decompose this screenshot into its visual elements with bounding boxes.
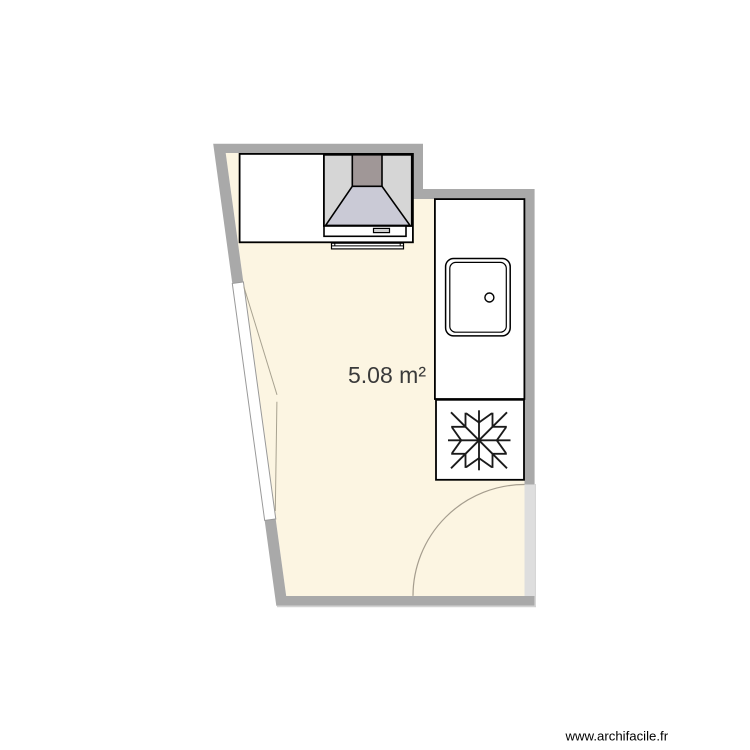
svg-text:5.08 m²: 5.08 m² <box>348 362 426 388</box>
svg-text:www.archifacile.fr: www.archifacile.fr <box>565 729 669 744</box>
